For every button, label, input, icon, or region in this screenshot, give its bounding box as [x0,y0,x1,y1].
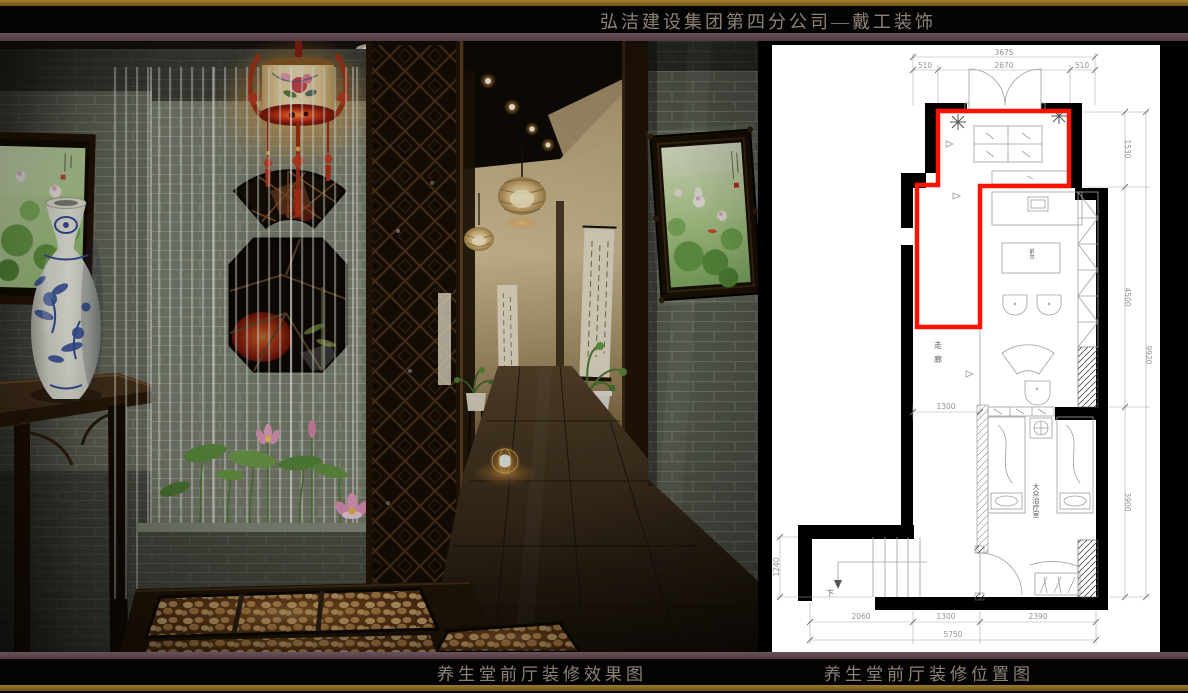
caption-bar: 养生堂前厅装修效果图 养生堂前厅装修位置图 [0,659,1188,685]
caption-plan: 养生堂前厅装修位置图 [824,660,1034,685]
dim-bottom-total: 5750 [943,630,962,639]
dim-bottom-3: 2390 [1028,612,1047,621]
hatched-storage-lower [1078,540,1098,597]
dim-right-3: 3900 [1123,492,1132,511]
hatched-storage-upper [1078,347,1098,407]
reception-label: 前台 [1028,247,1035,261]
rendering-scene [0,41,758,652]
company-title: 弘洁建设集团第四分公司—戴工装饰 [600,8,936,34]
interior-rendering [0,41,758,652]
dim-right-2: 4500 [1123,287,1132,306]
gold-rule-bottom [0,685,1188,691]
dim-top-total: 3675 [994,48,1013,57]
stairs-down-label: 下 [826,589,834,598]
presentation-board: 弘洁建设集团第四分公司—戴工装饰 [0,0,1188,693]
floor-plan-drawing: 前台 [772,45,1160,652]
caption-rendering: 养生堂前厅装修效果图 [437,660,647,685]
title-bar: 弘洁建设集团第四分公司—戴工装饰 [0,6,1188,33]
treatment-room-label: 大众治疗室 [1032,482,1040,518]
dim-left-stair: 1240 [772,557,781,576]
plan-plant-left [950,114,966,130]
dim-top-mid: 2670 [994,61,1013,70]
dim-bottom-1: 2060 [851,612,870,621]
dim-top-left: 510 [918,61,933,70]
floor-plan: 前台 [772,45,1160,652]
dim-bottom-2: 1300 [936,612,955,621]
divider-rule-bottom [0,652,1188,659]
divider-rule-top [0,33,1188,41]
dim-right-1: 1530 [1123,139,1132,158]
dim-right-total: 9920 [1144,345,1153,364]
corridor-label: 走廊 [934,341,943,369]
dim-mid-corridor: 1300 [936,402,955,411]
corridor-wardrobe [977,405,988,553]
dim-top-right: 510 [1075,61,1090,70]
